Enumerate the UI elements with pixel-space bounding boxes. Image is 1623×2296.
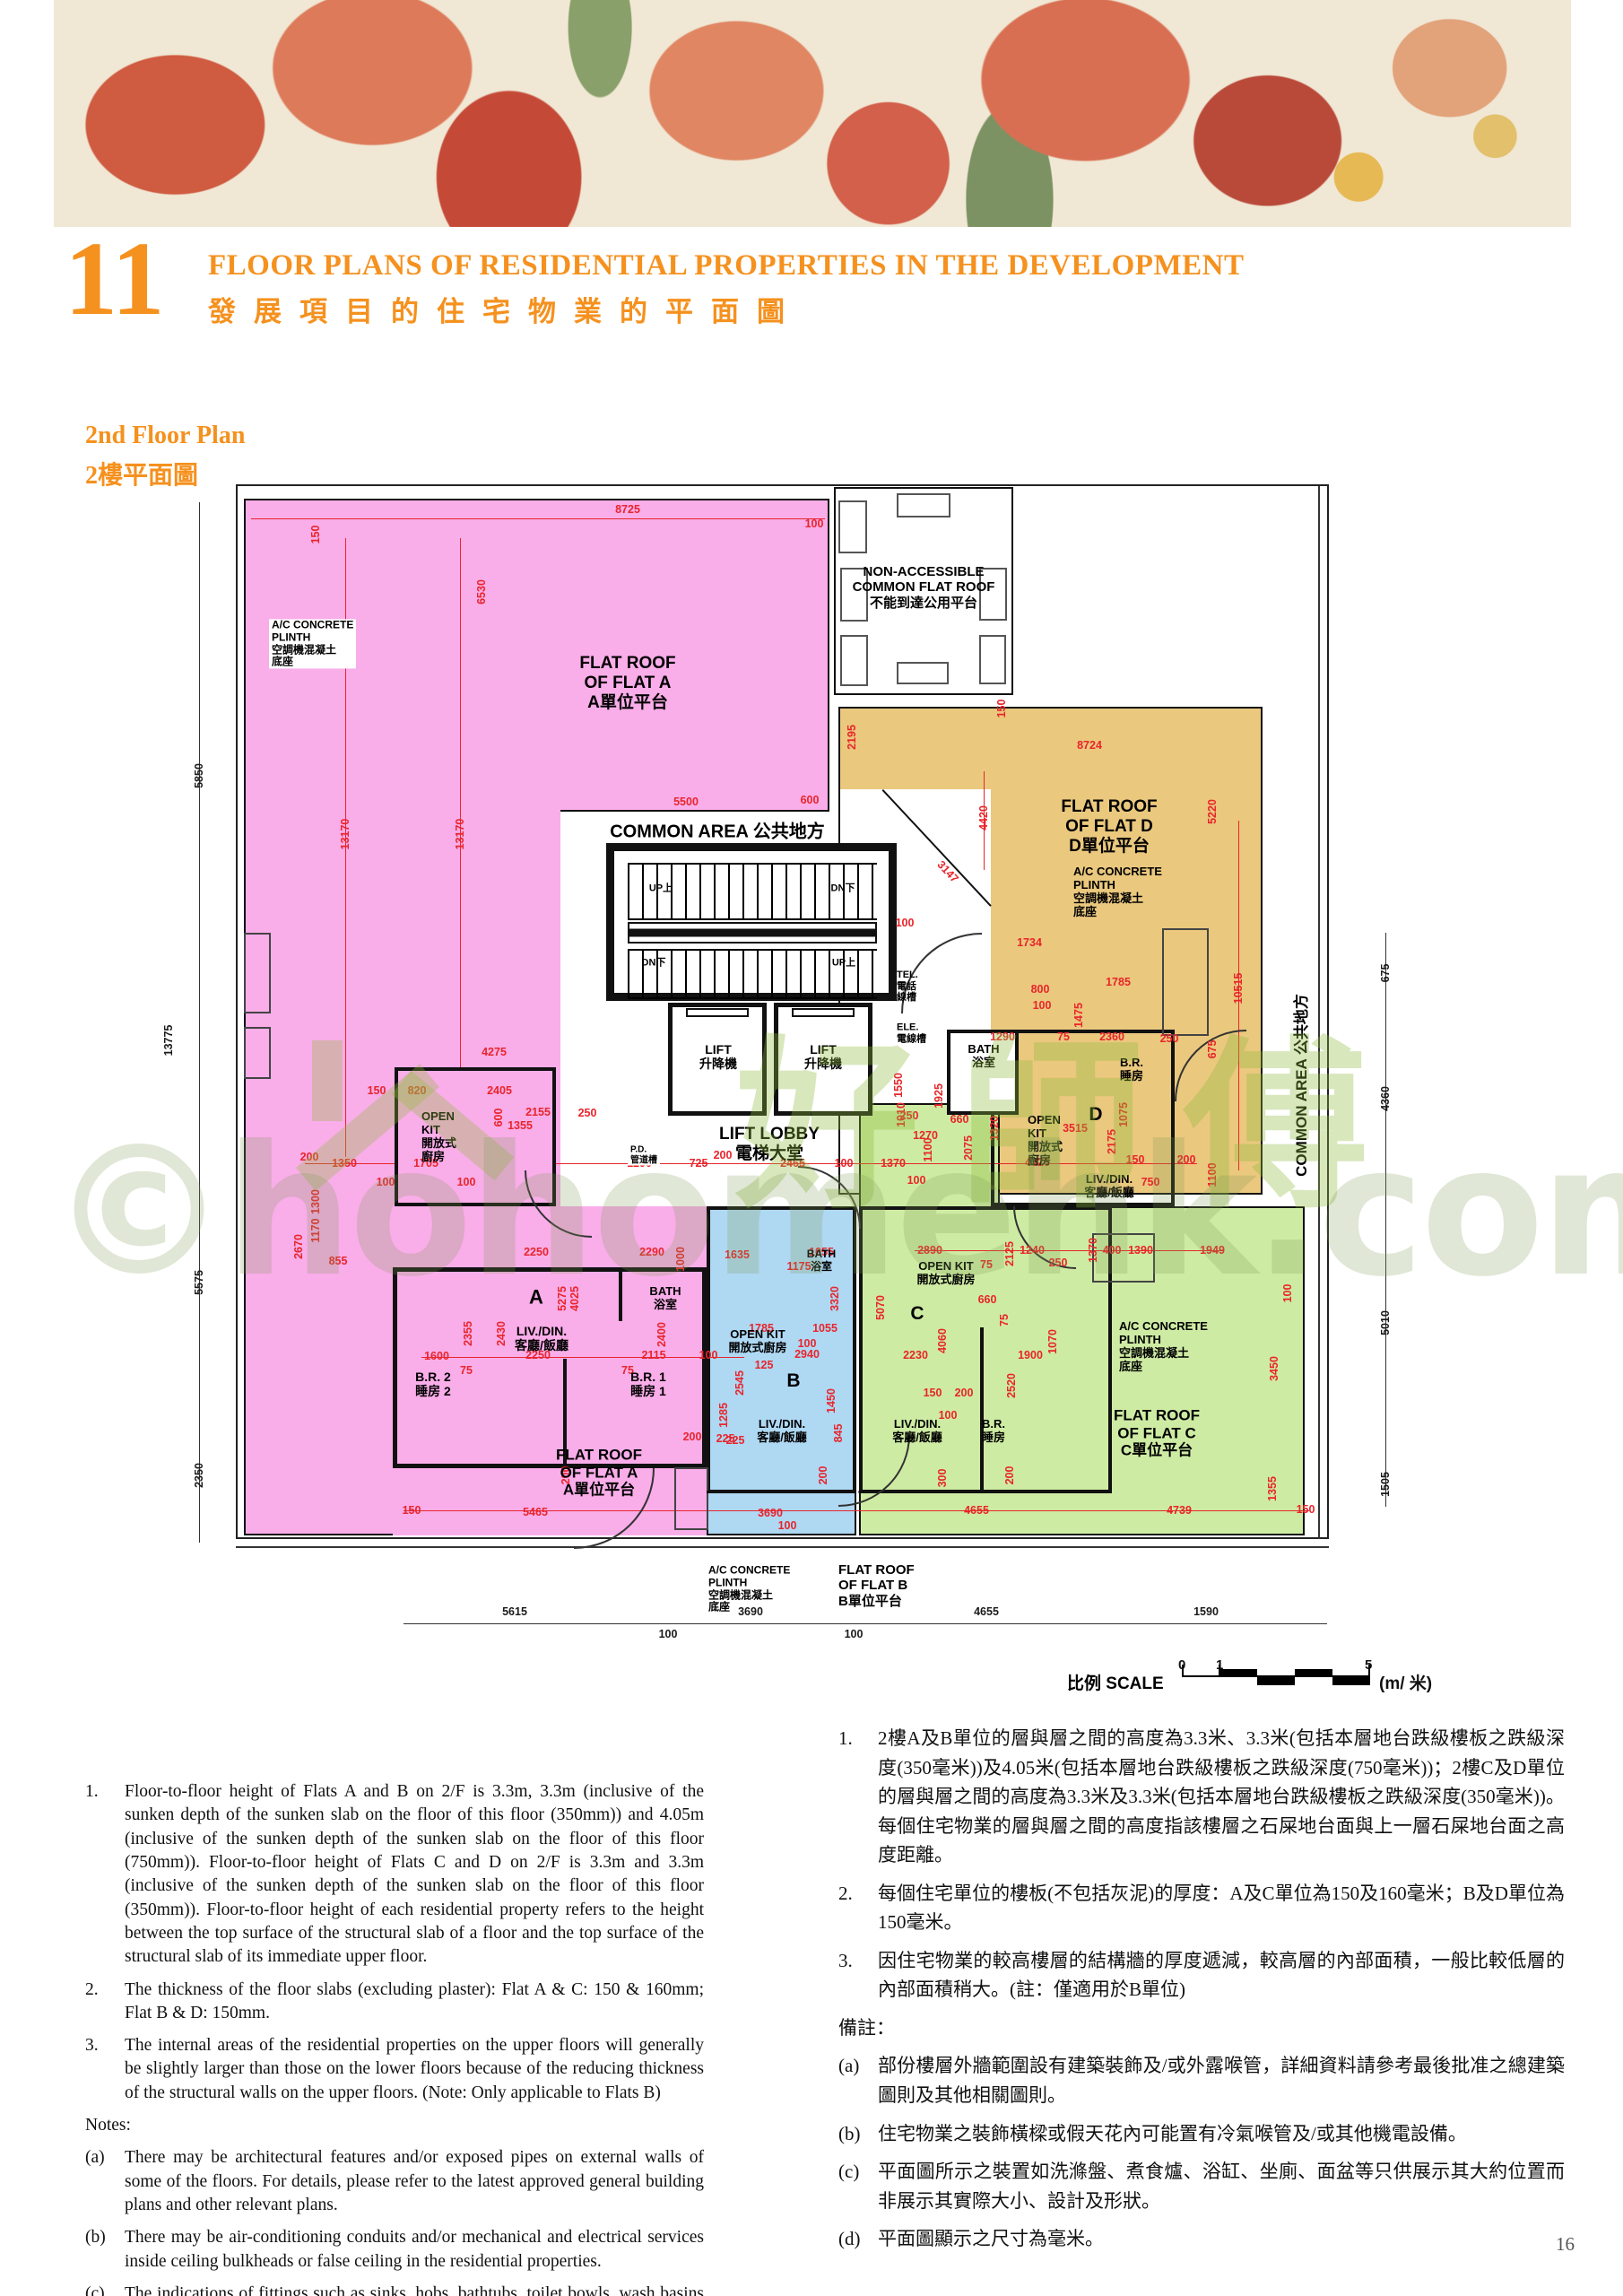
note-item: (b)There may be air-conditioning conduit… (85, 2226, 704, 2274)
dim-label: 1170 (309, 1218, 322, 1242)
dim-label: 2155 (525, 1106, 551, 1118)
pd-duct-label: P.D.管道槽 (628, 1145, 660, 1166)
non-accessible-roof-label: NON-ACCESSIBLECOMMON FLAT ROOF不能到達公用平台 (853, 564, 995, 611)
dim-label: 5070 (874, 1295, 887, 1320)
dim-label: 100 (778, 1519, 797, 1532)
dim-label: 1285 (717, 1403, 730, 1428)
dim-label: 4655 (974, 1605, 999, 1618)
lift-door-1 (686, 1008, 749, 1017)
dim-label: 200 (955, 1387, 974, 1399)
dim-label: 5220 (1206, 799, 1219, 824)
dim-label: 1450 (825, 1388, 838, 1413)
dim-label: 660 (950, 1113, 969, 1126)
stair-flight-lower (628, 949, 877, 999)
dim-label: 3690 (758, 1507, 783, 1519)
note-item: 2.The thickness of the floor slabs (excl… (85, 1979, 704, 2026)
dim-label: 75 (1057, 1031, 1070, 1043)
dim-label: 675 (1379, 964, 1392, 983)
dim-label: 600 (801, 794, 820, 806)
scale-bar-graphic: 0 1 5 (1182, 1659, 1370, 1690)
dim-label: 75 (460, 1364, 473, 1377)
dim-label: 6530 (475, 579, 488, 604)
dim-label: 1785 (1106, 976, 1131, 988)
scale-label: 比例 SCALE (1067, 1670, 1164, 1694)
open-kit-d-label: OPENKIT開放式廚房 (1028, 1114, 1063, 1168)
dim-label: 5275 (556, 1286, 568, 1311)
dim-label: 1925 (933, 1083, 945, 1109)
dim-label: 100 (907, 1174, 926, 1187)
dim-label: 250 (1049, 1257, 1068, 1269)
dim-label: 100 (845, 1628, 864, 1640)
dim-label: 1590 (1193, 1605, 1219, 1618)
notes-zh-numbered: 1.2樓A及B單位的層與層之間的高度為3.3米、3.3米(包括本層地台跌級樓板之… (838, 1724, 1565, 2005)
dim-label: 100 (1281, 1284, 1294, 1303)
dim-label: 100 (805, 517, 824, 530)
dim-label: 5465 (523, 1506, 548, 1518)
dim-label: 1949 (1200, 1244, 1225, 1257)
dim-label: 1600 (424, 1350, 449, 1362)
dim-label: 2175 (1106, 1129, 1118, 1154)
dim-label: 8725 (615, 503, 640, 516)
dim-label: 1900 (1018, 1349, 1043, 1361)
dim-label: 1240 (1020, 1244, 1045, 1257)
note-item: (a)部份樓層外牆範圍設有建築裝飾及/或外露喉管，詳細資料請參考最後批准之總建築… (838, 2051, 1565, 2109)
dim-label: 100 (699, 1349, 718, 1361)
dim-label: 1635 (725, 1248, 750, 1261)
roof-plinth (979, 635, 1006, 684)
dim-label: 2520 (1005, 1373, 1018, 1398)
notes-zh-heading: 備註： (838, 2013, 1565, 2043)
dim-label: 200 (1177, 1153, 1196, 1166)
dim-label: 150 (1126, 1153, 1145, 1166)
dim-label: 1100 (1206, 1162, 1219, 1187)
dim-label: 1505 (1379, 1472, 1392, 1497)
window-line-a (393, 1465, 707, 1467)
dim-label: 1370 (1087, 1238, 1099, 1263)
ac-plinth-c-label: A/C CONCRETEPLINTH空調機混凝土底座 (1119, 1320, 1208, 1374)
window-line-bc (707, 1491, 1112, 1493)
dim-label: 5010 (1379, 1310, 1392, 1335)
frame-right-line (1318, 486, 1320, 1539)
dim-label: 2430 (495, 1321, 508, 1346)
dim-label: 1290 (990, 1031, 1015, 1043)
flat-d-letter: D (1089, 1104, 1102, 1126)
note-item: (b)住宅物業之裝飾橫樑或假天花內可能置有冷氣喉管及/或其他機電設備。 (838, 2119, 1565, 2149)
ac-plinth-c (1092, 1233, 1155, 1283)
dim-label: 100 (896, 917, 915, 929)
dim-label: 2670 (292, 1234, 305, 1259)
dim-label: 600 (492, 1109, 505, 1127)
dim-label: 4275 (482, 1046, 507, 1058)
flat-b-letter: B (786, 1370, 800, 1392)
flat-a-letter: A (529, 1285, 543, 1308)
note-item: (a)There may be architectural features a… (85, 2146, 704, 2217)
dim-label: 2195 (846, 725, 858, 750)
dim-label: 13170 (339, 819, 352, 850)
dim-label: 4420 (977, 805, 990, 831)
page: 11 FLOOR PLANS OF RESIDENTIAL PROPERTIES… (0, 0, 1623, 2296)
notes-zh-lettered: (a)部份樓層外牆範圍設有建築裝飾及/或外露喉管，詳細資料請參考最後批准之總建築… (838, 2051, 1565, 2253)
dim-label: 400 (1103, 1244, 1122, 1257)
dim-label: 1320 (988, 1116, 1001, 1141)
stair-landing (628, 922, 877, 944)
flat-roof-a-top-label: FLAT ROOFOF FLAT AA單位平台 (579, 654, 675, 713)
dim-label: 100 (457, 1176, 476, 1188)
dim-label: 1475 (1072, 1003, 1085, 1028)
note-item: 3.The internal areas of the residential … (85, 2034, 704, 2105)
dim-label: 5575 (193, 1270, 205, 1295)
dim-label: 200 (817, 1466, 829, 1485)
br-d-label: B.R.睡房 (1120, 1057, 1143, 1083)
boundary-dashed-d (1261, 707, 1263, 1195)
br2-a-label: B.R. 2睡房 2 (415, 1370, 451, 1398)
dim-label: 2360 (1099, 1031, 1124, 1043)
dim-label: 75 (998, 1314, 1011, 1326)
dim-label: 2250 (524, 1246, 549, 1258)
notes-chinese: 1.2樓A及B單位的層與層之間的高度為3.3米、3.3米(包括本層地台跌級樓板之… (838, 1724, 1565, 2263)
ac-plinth-d (1162, 928, 1209, 1036)
dim-label: 3515 (1063, 1122, 1088, 1135)
dim-label: 1350 (332, 1157, 357, 1170)
roof-plinth (840, 635, 868, 686)
lift-lobby-label: LIFT LOBBY電梯大堂 (719, 1125, 820, 1164)
note-item: 2.每個住宅單位的樓板(不包括灰泥)的厚度：A及C單位為150及160毫米；B及… (838, 1879, 1565, 1937)
dim-label: 2125 (1003, 1241, 1016, 1266)
ele-duct-label: ELE.電線槽 (897, 1022, 926, 1044)
stair-dn-label-2: DN下 (642, 958, 666, 970)
stair-up-label-2: UP上 (832, 958, 855, 970)
livdin-c-label: LIV./DIN.客廳/飯廳 (892, 1418, 942, 1445)
flat-roof-a-bottom-label: FLAT ROOFOF FLAT AA單位平台 (556, 1447, 642, 1500)
dim-label: 1355 (1266, 1476, 1279, 1501)
dim-label: 4360 (1379, 1086, 1392, 1111)
dim-label: 5615 (502, 1605, 527, 1618)
dim-label: 2350 (193, 1463, 205, 1488)
dim-label: 13775 (162, 1025, 175, 1057)
dim-label: 725 (690, 1157, 708, 1170)
dim-label: 150 (368, 1084, 386, 1097)
floor-plan: COMMON AREA 公共地方NON-ACCESSIBLECOMMON FLA… (0, 0, 1623, 1704)
dim-label: 1550 (892, 1073, 905, 1098)
dim-label: 855 (329, 1255, 348, 1267)
dim-label: 1355 (508, 1119, 533, 1132)
dim-label: 1055 (812, 1322, 838, 1335)
lift-door-2 (792, 1008, 855, 1017)
scale-unit: (m/ 米) (1379, 1670, 1432, 1694)
dim-label: 2355 (462, 1321, 474, 1346)
dim-label: 5850 (193, 763, 205, 788)
dim-label: 150 (924, 1387, 942, 1399)
dim-label: 1270 (913, 1129, 938, 1142)
dim-label: 100 (377, 1176, 395, 1188)
dim-label: 2405 (487, 1084, 512, 1097)
dim-label: 3450 (1268, 1356, 1280, 1381)
stair-up-label-1: UP上 (649, 883, 673, 895)
livdin-a-label: LIV./DIN.客廳/飯廳 (515, 1324, 568, 1352)
bath-b-label: BATH浴室 (807, 1248, 836, 1274)
dim-label: 845 (832, 1424, 845, 1443)
note-item: 1.Floor-to-floor height of Flats A and B… (85, 1780, 704, 1970)
dim-label: 150 (1297, 1503, 1315, 1516)
ac-plinth-b-label: A/C CONCRETEPLINTH空調機混凝土底座 (708, 1564, 790, 1613)
note-item: (c)The indications of fittings such as s… (85, 2283, 704, 2296)
common-area-top-label: COMMON AREA 公共地方 (610, 822, 825, 843)
dim-label: 4025 (568, 1286, 581, 1311)
br1-a-label: B.R. 1睡房 1 (630, 1370, 666, 1398)
frame-bottom-line (236, 1546, 1329, 1548)
open-kit-a-label: OPENKIT開放式廚房 (421, 1110, 456, 1164)
dim-label: 800 (1031, 983, 1050, 996)
dim-label: 100 (835, 1157, 854, 1170)
dim-label: 250 (1160, 1032, 1179, 1045)
dim-label: 1070 (1046, 1329, 1059, 1354)
dim-label: 100 (1033, 999, 1052, 1012)
livdin-b-label: LIV./DIN.客廳/飯廳 (757, 1418, 807, 1445)
tel-duct-label: TEL.電話線槽 (897, 970, 918, 1004)
livdin-d-label: LIV./DIN.客廳/飯廳 (1084, 1173, 1134, 1200)
notes-en-lettered: (a)There may be architectural features a… (85, 2146, 704, 2296)
dim-label: 10515 (1232, 973, 1245, 1004)
br-c-label: B.R.睡房 (982, 1418, 1005, 1445)
dim-label: 5500 (673, 796, 699, 808)
dim-label: 1390 (1128, 1244, 1153, 1257)
notes-en-numbered: 1.Floor-to-floor height of Flats A and B… (85, 1780, 704, 2105)
flat-roof-b-label: FLAT ROOFOF FLAT BB單位平台 (838, 1562, 915, 1609)
notes-english: 1.Floor-to-floor height of Flats A and B… (85, 1780, 704, 2296)
flat-roof-d-label: FLAT ROOFOF FLAT DD單位平台 (1061, 797, 1157, 857)
dim-label: 3320 (829, 1286, 841, 1311)
ac-plinth-left-label: A/C CONCRETEPLINTH空調機混凝土底座 (269, 619, 356, 668)
dim-label: 150 (309, 526, 322, 544)
dim-label: 75 (980, 1258, 993, 1271)
dim-label: 4060 (936, 1328, 949, 1353)
dim-label: 2115 (641, 1349, 665, 1361)
ac-plinth-a-left (244, 933, 271, 1013)
lift-label-1: LIFT升降機 (699, 1042, 737, 1071)
dim-label: 8724 (1077, 739, 1102, 752)
dim-label: 1370 (881, 1157, 906, 1170)
flat-roof-c-label: FLAT ROOFOF FLAT CC單位平台 (1114, 1407, 1200, 1460)
lift-label-2: LIFT升降機 (804, 1042, 842, 1071)
dim-label: 2940 (794, 1348, 820, 1361)
ac-plinth-b (674, 1467, 708, 1530)
dim-label: 2890 (917, 1244, 942, 1257)
dim-label: 675 (1206, 1040, 1219, 1059)
dim-label: 125 (755, 1359, 774, 1371)
dim-label: 150 (403, 1504, 421, 1517)
dim-label: 200 (683, 1431, 702, 1443)
notes-en-heading: Notes: (85, 2114, 704, 2137)
note-item: (c)平面圖所示之裝置如洗滌盤、煮食爐、浴缸、坐廁、面盆等只供展示其大約位置而非… (838, 2157, 1565, 2215)
dim-label: 200 (1003, 1466, 1016, 1485)
dim-label: 4655 (964, 1504, 989, 1517)
dim-label: 4739 (1167, 1504, 1192, 1517)
dim-label: 100 (659, 1628, 678, 1640)
dim-label: 225 (726, 1434, 745, 1447)
open-kit-c-label: OPEN KIT開放式廚房 (916, 1260, 975, 1287)
dim-label: 1300 (309, 1189, 322, 1214)
dim-label: 1010 (895, 1102, 907, 1127)
dim-label: 1000 (674, 1247, 687, 1272)
roof-plinth (897, 493, 950, 517)
stair-dn-label-1: DN下 (831, 883, 855, 895)
dim-label: 2075 (962, 1135, 975, 1161)
dim-label: 2400 (655, 1322, 668, 1347)
dim-label: 150 (995, 700, 1008, 718)
dim-label: 2545 (733, 1370, 746, 1396)
roof-plinth (838, 500, 867, 553)
note-item: 1.2樓A及B單位的層與層之間的高度為3.3米、3.3米(包括本層地台跌級樓板之… (838, 1724, 1565, 1870)
dim-label: 1075 (1117, 1102, 1130, 1127)
dim-label: 660 (978, 1293, 997, 1306)
note-item: (d)平面圖顯示之尺寸為毫米。 (838, 2224, 1565, 2254)
dim-label: 300 (936, 1469, 949, 1488)
note-item: 3.因住宅物業的較高樓層的結構牆的厚度遞減，較高層的內部面積，一般比較低層的內部… (838, 1946, 1565, 2005)
dim-label: 2230 (903, 1349, 928, 1361)
ac-plinth-a-left2 (244, 1027, 271, 1079)
flat-c-letter: C (910, 1303, 924, 1325)
dim-label: 200 (300, 1151, 319, 1163)
open-kit-b-label: OPEN KIT開放式廚房 (728, 1328, 786, 1355)
ac-plinth-d-label: A/C CONCRETEPLINTH空調機混凝土底座 (1073, 865, 1162, 919)
dim-label: 820 (408, 1084, 427, 1097)
roof-plinth (897, 662, 949, 684)
bath-a-label: BATH浴室 (649, 1285, 681, 1312)
dim-label: 750 (1141, 1176, 1160, 1188)
common-area-right-label: COMMON AREA 公共地方 (1293, 994, 1311, 1177)
dim-label: 13170 (454, 819, 466, 850)
dim-label: 250 (578, 1107, 597, 1119)
dim-label: 2290 (639, 1246, 664, 1258)
dim-label: 1734 (1017, 936, 1042, 949)
bath-d-label: BATH浴室 (968, 1043, 999, 1070)
